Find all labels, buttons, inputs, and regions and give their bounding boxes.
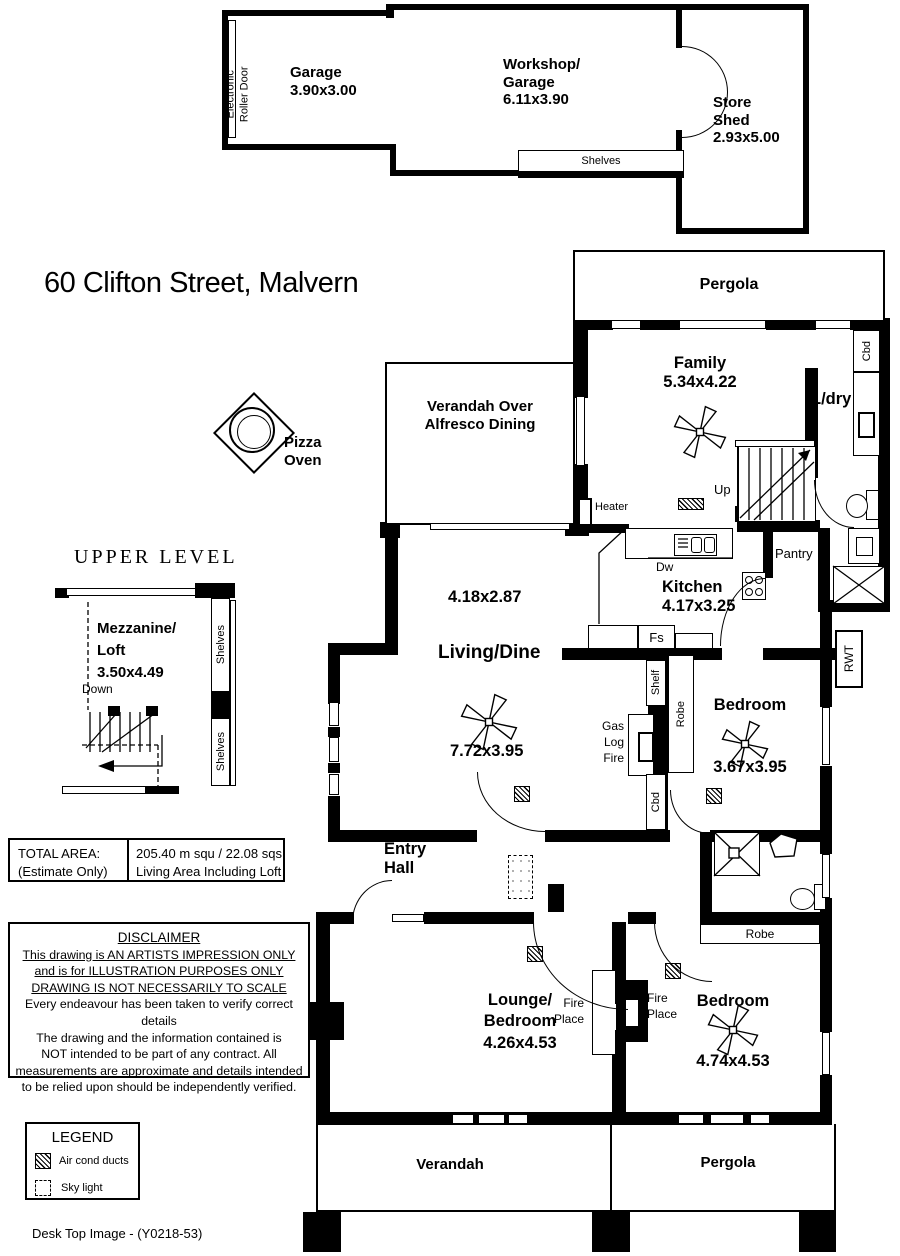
ceiling-fan-icon — [675, 407, 726, 458]
disclaimer-title: DISCLAIMER — [10, 930, 308, 947]
wall — [820, 766, 832, 832]
window — [815, 320, 851, 329]
wall — [328, 763, 340, 773]
nook-dims-label: 4.18x2.87 — [448, 588, 521, 607]
workshop-line2: Garage — [503, 74, 580, 92]
window — [576, 396, 585, 466]
wall — [676, 228, 809, 234]
wall — [820, 924, 832, 1032]
verandah-post — [303, 1212, 341, 1252]
upper-level-title: UPPER LEVEL — [74, 546, 238, 570]
shelves-label: Shelves — [518, 150, 684, 172]
disclaimer-l3: NOT intended to be part of any contract.… — [10, 1046, 308, 1063]
mezzanine-label: Mezzanine/ Loft 3.50x4.49 — [97, 618, 176, 683]
window — [822, 707, 830, 765]
wall — [318, 912, 354, 924]
kitchen-dims: 4.17x3.25 — [662, 597, 735, 616]
wall — [589, 524, 629, 533]
fire2-line2: Place — [647, 1006, 677, 1022]
heater-label: Heater — [595, 501, 628, 514]
sink-basin — [691, 537, 702, 553]
wall — [211, 692, 230, 718]
window — [230, 600, 236, 786]
wall — [562, 648, 722, 660]
basin-inner — [856, 537, 873, 556]
window — [452, 1114, 474, 1124]
disclaimer-l1: Every endeavour has been taken to verify… — [10, 996, 308, 1029]
disclaimer-u2: and is for ILLUSTRATION PURPOSES ONLY — [10, 963, 308, 980]
door-arc — [814, 480, 854, 528]
wall — [820, 655, 832, 707]
pizza-line1: Pizza — [284, 434, 322, 452]
pantry-label: Pantry — [775, 546, 813, 561]
fire1-line2: Place — [542, 1011, 584, 1027]
window — [822, 1032, 830, 1075]
pizza-oven-label: Pizza Oven — [284, 434, 322, 469]
kitchen-name: Kitchen — [662, 578, 735, 597]
workshop-label: Workshop/ Garage 6.11x3.90 — [503, 56, 580, 109]
door-arc — [682, 46, 728, 92]
robe1-text: Robe — [675, 701, 687, 727]
aircond-duct-icon — [678, 498, 704, 510]
gas-line1: Gas — [588, 718, 624, 734]
wall — [222, 10, 394, 16]
bedroom1-name-label: Bedroom — [698, 696, 802, 715]
shelf-text: Shelf — [650, 670, 662, 695]
alfresco-label: Verandah Over Alfresco Dining — [395, 398, 565, 433]
total-area-value1: 205.40 m squ / 22.08 sqs — [136, 845, 282, 863]
wall — [518, 172, 684, 178]
cbd-mid-text: Cbd — [650, 792, 662, 812]
shelves-b-text: Shelves — [215, 732, 227, 771]
shower-box — [714, 832, 760, 876]
wall — [316, 912, 318, 1212]
wall — [676, 4, 809, 10]
wall — [316, 1210, 836, 1212]
window — [329, 702, 339, 726]
fs-label: Fs — [638, 625, 675, 649]
wall — [803, 4, 809, 234]
entry-line2: Hall — [384, 859, 426, 878]
wall — [328, 796, 340, 832]
shelves-a-label: Shelves — [211, 598, 230, 692]
floor-plan: 60 Clifton Street, Malvern Desk Top Imag… — [0, 0, 900, 1256]
mezz-line2: Loft — [97, 640, 176, 662]
fire1-line1: Fire — [542, 995, 584, 1011]
wall — [388, 4, 682, 10]
shed-line2: Shed — [713, 112, 780, 130]
verandah-post — [799, 1212, 836, 1252]
total-area-values: 205.40 m squ / 22.08 sqs Living Area Inc… — [136, 845, 282, 880]
wall — [700, 832, 712, 924]
shed-dims: 2.93x5.00 — [713, 129, 780, 147]
rwt-text: RWT — [842, 645, 856, 672]
footer-reference: Desk Top Image - (Y0218-53) — [32, 1226, 202, 1241]
bench — [588, 625, 638, 649]
family-label: Family 5.34x4.22 — [640, 354, 760, 393]
entry-hall-label: Entry Hall — [384, 840, 426, 879]
window — [392, 914, 424, 922]
cbd-top-text: Cbd — [861, 341, 873, 361]
lounge-dims: 4.26x4.53 — [450, 1033, 590, 1054]
page-title: 60 Clifton Street, Malvern — [44, 266, 358, 300]
divider — [127, 840, 129, 880]
ceiling-fan-icon — [709, 1006, 758, 1055]
door-arc — [352, 880, 392, 922]
wall — [834, 1124, 836, 1212]
wall — [328, 655, 340, 704]
wall — [385, 523, 398, 651]
kitchen-label: Kitchen 4.17x3.25 — [662, 578, 735, 617]
legend-box: LEGEND Air cond ducts Sky light — [25, 1122, 140, 1200]
window — [710, 1114, 744, 1124]
laundry-label: L/dry — [811, 390, 851, 409]
window — [679, 320, 766, 329]
window — [678, 1114, 704, 1124]
legend-item1-label: Air cond ducts — [59, 1155, 129, 1168]
shelves-text: Shelves — [581, 155, 620, 167]
bench-cell — [675, 633, 713, 649]
disclaimer-box: DISCLAIMER This drawing is AN ARTISTS IM… — [8, 922, 310, 1078]
roller-door-line2: Roller Door — [238, 34, 252, 154]
roller-door-line1: Electronic — [224, 34, 238, 154]
workshop-dims: 6.11x3.90 — [503, 91, 580, 109]
verandah-post — [306, 1002, 344, 1040]
wall — [424, 912, 534, 924]
door-arc — [477, 772, 545, 832]
stairs-box — [738, 446, 816, 522]
disclaimer-u1: This drawing is AN ARTISTS IMPRESSION ON… — [10, 947, 308, 964]
living-dims-label: 7.72x3.95 — [450, 742, 523, 761]
disclaimer-u3: DRAWING IS NOT NECESSARILY TO SCALE — [10, 980, 308, 997]
fire2-line1: Fire — [647, 990, 677, 1006]
total-area-labels: TOTAL AREA: (Estimate Only) — [18, 845, 108, 880]
wall — [610, 1125, 612, 1212]
garage-label: Garage 3.90x3.00 — [290, 64, 357, 99]
bedroom2-dims-label: 4.74x4.53 — [681, 1052, 785, 1071]
door-arc — [670, 790, 710, 834]
aircond-duct-icon — [35, 1153, 51, 1169]
entry-line1: Entry — [384, 840, 426, 859]
wall — [328, 643, 398, 655]
total-area-label1: TOTAL AREA: — [18, 845, 108, 863]
wall — [820, 832, 832, 854]
garage-name: Garage — [290, 64, 357, 82]
cbd-mid-label: Cbd — [646, 774, 666, 830]
garage-dims: 3.90x3.00 — [290, 82, 357, 100]
bedroom2-name-label: Bedroom — [681, 992, 785, 1011]
wall — [108, 706, 120, 716]
heater-box — [578, 498, 592, 526]
wall — [676, 4, 682, 48]
verandah-post — [592, 1212, 630, 1252]
fireplace2-label: Fire Place — [647, 990, 677, 1022]
window — [66, 588, 196, 596]
pergola-top-label: Pergola — [573, 276, 885, 295]
roller-door-label: Electronic Roller Door — [224, 34, 253, 154]
wall — [573, 330, 588, 398]
total-area-value2: Living Area Including Loft — [136, 863, 282, 881]
window — [611, 320, 641, 329]
dishwasher-label: Dw — [656, 560, 673, 574]
window — [62, 786, 146, 794]
window — [329, 774, 339, 795]
disclaimer-l4: measurements are approximate and details… — [10, 1063, 308, 1080]
legend-title: LEGEND — [27, 1129, 138, 1147]
alfresco-outline — [385, 362, 575, 525]
wall — [628, 912, 656, 924]
wall — [146, 706, 158, 716]
sink-basin — [704, 537, 715, 553]
window — [750, 1114, 770, 1124]
robe1-label: Robe — [668, 655, 694, 773]
wall — [820, 1075, 832, 1114]
wall — [195, 583, 235, 598]
wall — [390, 170, 524, 176]
up-label: Up — [714, 482, 731, 497]
fireplace1-label: Fire Place — [542, 995, 584, 1027]
window — [822, 854, 830, 898]
gas-line3: Fire — [588, 750, 624, 766]
wall — [548, 884, 564, 912]
total-area-label2: (Estimate Only) — [18, 863, 108, 881]
alfresco-line2: Alfresco Dining — [395, 416, 565, 434]
disclaimer-l5: to be relied upon should be independentl… — [10, 1079, 308, 1096]
pizza-oven-circle-inner — [237, 415, 271, 449]
toilet-bowl — [790, 888, 815, 910]
living-dine-label: Living/Dine — [438, 642, 540, 664]
shelf-label: Shelf — [646, 660, 666, 706]
window — [329, 737, 339, 762]
verandah-bottom-label: Verandah — [390, 1156, 510, 1174]
window — [508, 1114, 528, 1124]
fs-text: Fs — [649, 630, 663, 645]
cupboard-top-label: Cbd — [853, 330, 880, 372]
pergola-bottom-label: Pergola — [678, 1154, 778, 1172]
rwt-label: RWT — [835, 630, 863, 688]
shower-box — [833, 566, 885, 604]
pizza-line2: Oven — [284, 452, 322, 470]
wall — [676, 172, 682, 230]
shed-line1: Store — [713, 94, 780, 112]
alfresco-line1: Verandah Over — [395, 398, 565, 416]
wall — [712, 912, 832, 924]
store-shed-label: Store Shed 2.93x5.00 — [713, 94, 780, 147]
gas-line2: Log — [588, 734, 624, 750]
bedroom1-dims-label: 3.67x3.95 — [698, 758, 802, 777]
workshop-line1: Workshop/ — [503, 56, 580, 74]
family-name: Family — [640, 354, 760, 373]
window — [735, 440, 815, 447]
skylight-icon — [35, 1180, 51, 1196]
laundry-sink — [858, 412, 875, 438]
family-dims: 5.34x4.22 — [640, 373, 760, 392]
wall — [145, 786, 179, 794]
window — [478, 1114, 505, 1124]
robe2-label: Robe — [700, 924, 820, 944]
mezz-line1: Mezzanine/ — [97, 618, 176, 640]
disclaimer-l2: The drawing and the information containe… — [10, 1030, 308, 1047]
gas-log-fire-label: Gas Log Fire — [588, 718, 624, 767]
total-area-box: TOTAL AREA: (Estimate Only) 205.40 m squ… — [8, 838, 285, 882]
gas-fireplace-insert — [638, 732, 654, 762]
skylight-icon — [508, 855, 533, 899]
wall — [328, 727, 340, 737]
down-label: Down — [82, 682, 113, 696]
robe2-text: Robe — [746, 927, 775, 941]
legend-item2-label: Sky light — [61, 1182, 103, 1195]
shelves-b-label: Shelves — [211, 718, 230, 786]
shelves-a-text: Shelves — [215, 625, 227, 664]
mezz-dims: 3.50x4.49 — [97, 662, 176, 684]
window — [430, 523, 570, 530]
